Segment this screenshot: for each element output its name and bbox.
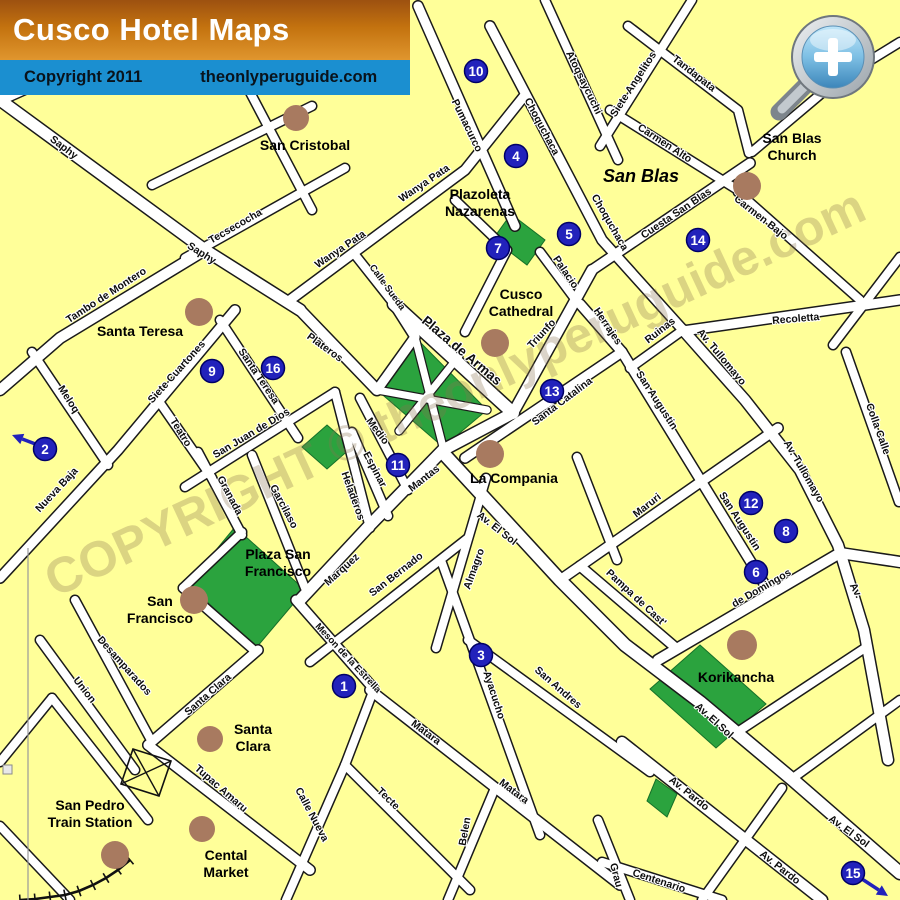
hotel-number: 8 [782,524,790,539]
map-canvas: COPYRIGHT © theonlyperuguide.comSaphySap… [0,0,900,900]
cental-market-dot [189,816,215,842]
hotel-number: 10 [468,64,483,79]
landmark-label: Plazoleta [450,186,511,202]
hotel-number: 4 [512,149,520,164]
san-pedro-train-station-dot [101,841,129,869]
la-compania-dot [476,440,504,468]
hotel-marker-4[interactable]: 4 [505,145,528,168]
railway-tick [20,895,21,900]
page-title: Cusco Hotel Maps [13,12,290,48]
hotel-marker-7[interactable]: 7 [487,237,510,260]
hotel-marker-14[interactable]: 14 [687,229,710,252]
hotel-number: 15 [845,866,861,881]
hotel-marker-11[interactable]: 11 [387,454,410,477]
hotel-number: 3 [477,648,485,663]
landmark-label: Cathedral [489,303,554,319]
landmark-label: Clara [235,738,270,754]
hotel-number: 5 [565,227,573,242]
hotel-marker-13[interactable]: 13 [541,380,564,403]
landmark-label: Francisco [245,563,311,579]
hotel-marker-6[interactable]: 6 [745,561,768,584]
landmark-label: Train Station [48,814,133,830]
landmark-label: San Cristobal [260,137,350,153]
landmark-label: Cusco [500,286,543,302]
hotel-number: 16 [265,361,281,376]
copyright-bar: Copyright 2011 theonlyperuguide.com [0,60,410,95]
handle-square [3,765,12,774]
landmark-label: Francisco [127,610,193,626]
landmark-label: Korikancha [698,669,774,685]
santa-teresa-dot [185,298,213,326]
cusco-cathedral-dot [481,329,509,357]
hotel-marker-3[interactable]: 3 [470,644,493,667]
hotel-number: 7 [494,241,502,256]
website-link[interactable]: theonlyperuguide.com [200,68,377,87]
santa-clara-dot [197,726,223,752]
landmark-label: Plaza San [245,546,310,562]
region-label: San Blas [603,166,679,186]
hotel-number: 13 [544,384,560,399]
hotel-number: 12 [743,496,758,511]
landmark-label: Nazarenas [445,203,515,219]
hotel-marker-8[interactable]: 8 [775,520,798,543]
landmark-plazoleta-nazarenas: PlazoletaNazarenas [445,186,515,219]
landmark-label: San Pedro [55,797,124,813]
landmark-label: Cental [205,847,248,863]
hotel-number: 9 [208,364,216,379]
map-header: Cusco Hotel Maps Copyright 2011 theonlyp… [0,0,410,95]
title-bar: Cusco Hotel Maps [0,0,410,60]
lens-highlight [810,29,856,51]
hotel-number: 11 [391,458,406,473]
cusco-hotel-map: COPYRIGHT © theonlyperuguide.comSaphySap… [0,0,900,900]
landmark-label: Santa [234,721,272,737]
landmark-label: Church [768,147,817,163]
hotel-number: 6 [752,565,760,580]
hotel-marker-5[interactable]: 5 [558,223,581,246]
hotel-marker-12[interactable]: 12 [740,492,763,515]
hotel-number: 2 [41,442,49,457]
copyright-text: Copyright 2011 [24,68,142,87]
landmark-label: Santa Teresa [97,323,183,339]
landmark-plaza-san-francisco: Plaza SanFrancisco [245,546,311,579]
landmark-label: Market [203,864,248,880]
san-blas-church-dot [733,172,761,200]
korikancha-dot [727,630,757,660]
hotel-marker-9[interactable]: 9 [201,360,224,383]
zoom-icon[interactable] [765,0,900,135]
hotel-marker-16[interactable]: 16 [262,357,285,380]
hotel-marker-10[interactable]: 10 [465,60,488,83]
landmark-label: La Compania [470,470,558,486]
hotel-number: 1 [340,679,348,694]
hotel-number: 14 [690,233,706,248]
hotel-marker-1[interactable]: 1 [333,675,356,698]
san-cristobal-dot [283,105,309,131]
landmark-label: San [147,593,173,609]
